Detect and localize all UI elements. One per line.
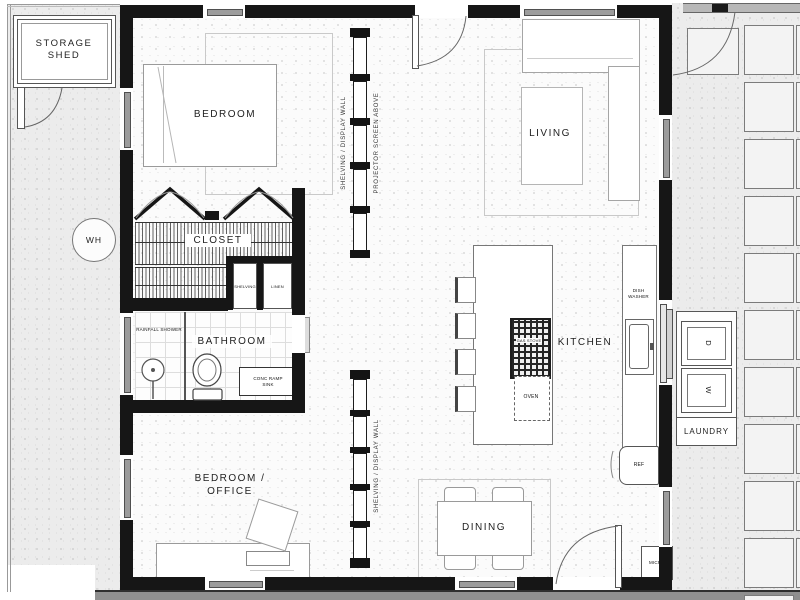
shower-drain (151, 368, 155, 372)
ref-door-arc (611, 451, 613, 478)
plan-linework (0, 0, 800, 600)
floor-plan: STORAGE SHED WH BEDROOM LIVING CLOSET RA… (0, 0, 800, 600)
patio-gate-swing-arc (673, 12, 735, 75)
shed-door-swing-arc (25, 88, 62, 127)
back-door-swing-arc (556, 526, 618, 584)
bed-throw-line (158, 67, 176, 163)
front-door-swing-arc (417, 16, 466, 66)
toilet-tank (193, 389, 222, 400)
bifold-closet-doors (135, 189, 294, 219)
bifold-swing-arcs (136, 192, 293, 218)
